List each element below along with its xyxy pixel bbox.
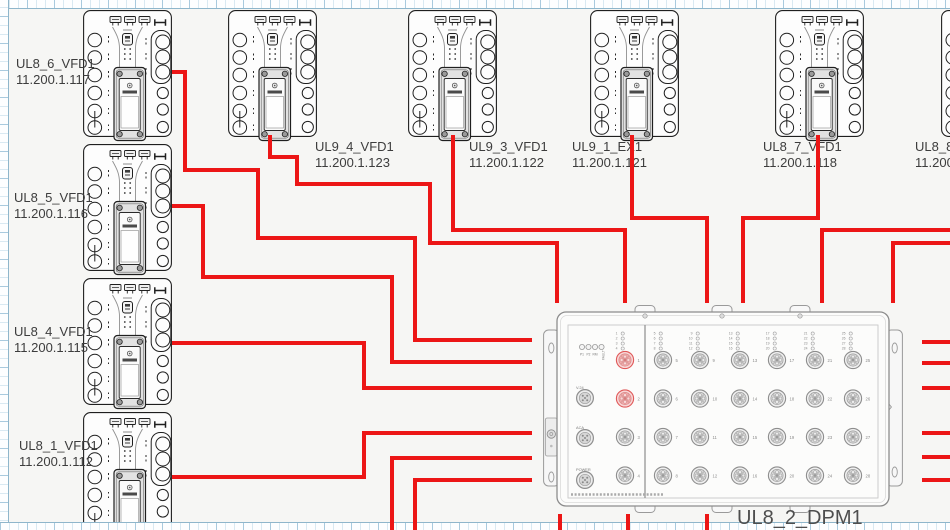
cable-2[interactable] — [172, 343, 532, 388]
cable-10[interactable] — [822, 230, 950, 303]
cable-7[interactable] — [453, 135, 625, 303]
cables-layer — [0, 0, 950, 530]
cable-8[interactable] — [632, 135, 707, 303]
cable-3[interactable] — [172, 433, 532, 477]
cable-5[interactable] — [415, 480, 532, 530]
cable-11[interactable] — [893, 243, 950, 303]
diagram-canvas: P1P2RMFAULTV.24ACAPOWER12341234567856789… — [0, 0, 950, 530]
cable-0[interactable] — [172, 72, 532, 340]
cable-9[interactable] — [743, 135, 818, 303]
